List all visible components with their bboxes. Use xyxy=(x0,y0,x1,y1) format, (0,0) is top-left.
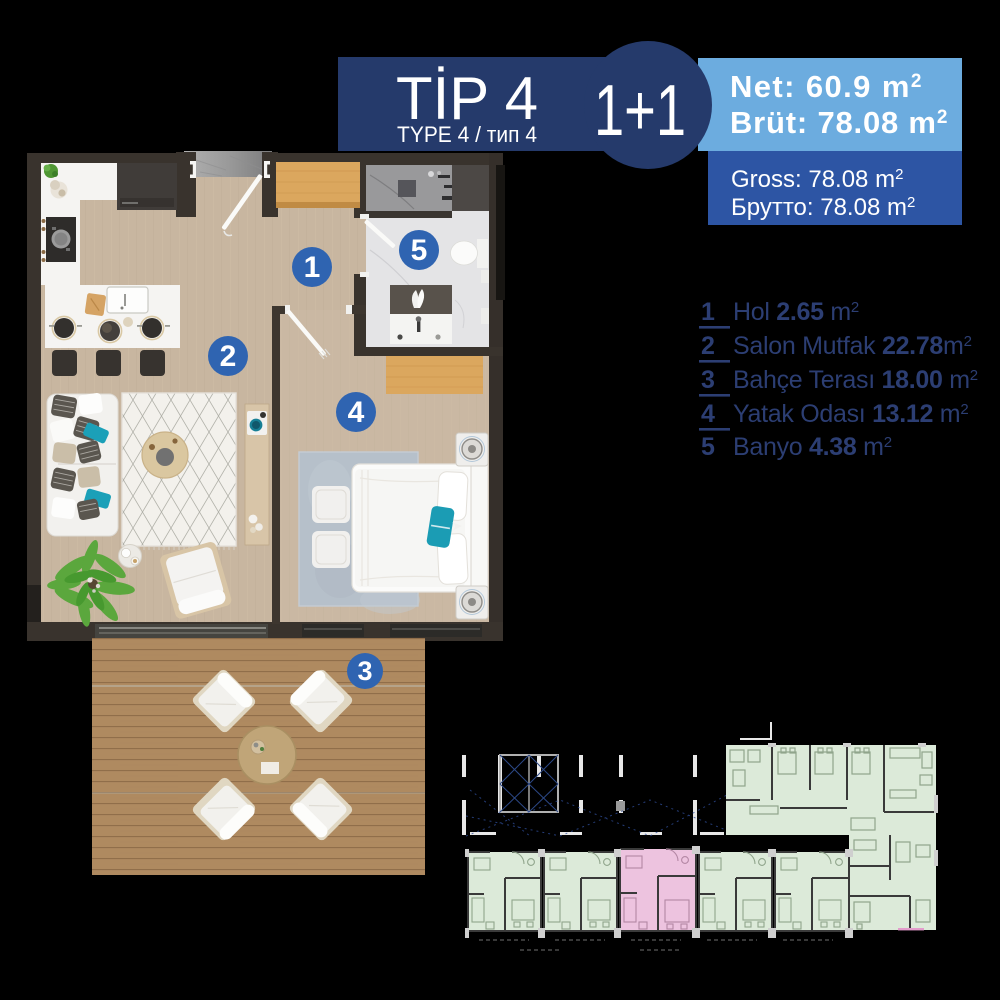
svg-text:3: 3 xyxy=(701,366,715,394)
svg-text:Hol 2.65 m2: Hol 2.65 m2 xyxy=(733,298,859,326)
svg-text:4: 4 xyxy=(701,400,715,428)
svg-text:1+1: 1+1 xyxy=(594,71,686,151)
svg-text:Yatak Odası 13.12 m2: Yatak Odası 13.12 m2 xyxy=(733,400,968,428)
svg-text:5: 5 xyxy=(411,234,428,267)
svg-text:1: 1 xyxy=(701,298,715,326)
svg-text:Net: 60.9 m2: Net: 60.9 m2 xyxy=(730,69,923,104)
svg-text:1: 1 xyxy=(304,251,321,284)
svg-text:Salon Mutfak 22.78m2: Salon Mutfak 22.78m2 xyxy=(733,332,972,360)
svg-text:Brüt: 78.08 m2: Brüt: 78.08 m2 xyxy=(730,105,948,140)
svg-text:4: 4 xyxy=(348,396,365,429)
svg-text:Gross: 78.08 m2: Gross: 78.08 m2 xyxy=(731,166,903,193)
svg-text:5: 5 xyxy=(701,433,715,461)
svg-text:Bahçe Terası 18.00 m2: Bahçe Terası 18.00 m2 xyxy=(733,366,978,394)
svg-text:Брутто: 78.08 m2: Брутто: 78.08 m2 xyxy=(731,194,915,221)
svg-text:2: 2 xyxy=(220,340,237,373)
svg-text:TYPE 4 / тип 4: TYPE 4 / тип 4 xyxy=(397,122,537,147)
svg-text:2: 2 xyxy=(701,332,715,360)
svg-text:3: 3 xyxy=(357,656,372,686)
svg-text:Banyo 4.38 m2: Banyo 4.38 m2 xyxy=(733,433,892,461)
